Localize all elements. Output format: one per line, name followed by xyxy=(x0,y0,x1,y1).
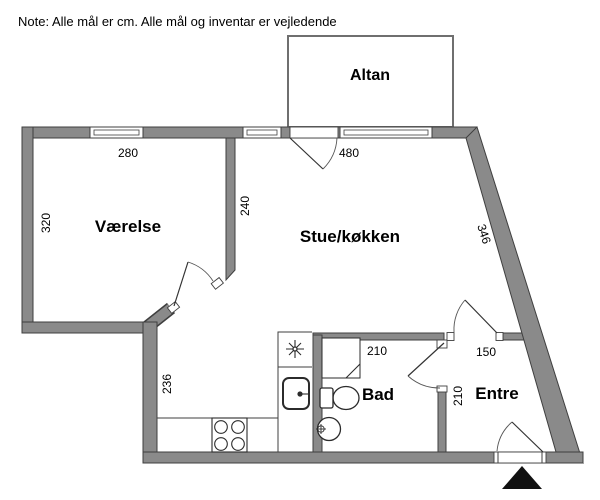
room-label-vaerelse: Værelse xyxy=(95,217,161,237)
bad-door-top-jamb xyxy=(437,340,447,348)
floor-plan-drawing xyxy=(0,0,600,500)
balcony-door-opening xyxy=(290,127,338,138)
dim-vaerelse-width: 280 xyxy=(118,146,138,160)
stove-burners-icon xyxy=(212,418,247,452)
dim-entre-wall: 210 xyxy=(451,386,465,406)
entrance-door xyxy=(497,422,543,452)
freezer-star-icon xyxy=(286,340,304,358)
room-label-altan: Altan xyxy=(350,67,390,85)
room-label-entre: Entre xyxy=(475,384,518,404)
bad-door xyxy=(408,343,444,388)
toilet-icon xyxy=(320,387,359,410)
dim-stue-window-wall: 480 xyxy=(339,146,359,160)
shower-icon xyxy=(322,338,360,378)
dim-entre-top-wall: 150 xyxy=(476,345,496,359)
balcony-door xyxy=(290,138,337,169)
stue-entre-door-left-jamb xyxy=(447,333,454,341)
window-2 xyxy=(243,127,281,138)
dim-stue-left-wall: 240 xyxy=(238,196,252,216)
kitchen-sink-icon xyxy=(283,378,309,409)
wall-bad-entre xyxy=(438,391,446,452)
vaerelse-door xyxy=(174,262,213,306)
dim-bad-width: 210 xyxy=(367,344,387,358)
note-text: Note: Alle mål er cm. Alle mål og invent… xyxy=(18,14,337,29)
room-label-bad: Bad xyxy=(362,385,394,405)
window-1 xyxy=(90,127,143,138)
wall-kitchen-left xyxy=(143,322,157,463)
window-3 xyxy=(340,127,432,138)
vaerelse-door-right-jamb xyxy=(211,278,223,290)
floor-plan: Note: Alle mål er cm. Alle mål og invent… xyxy=(0,0,600,500)
room-label-stue-kokken: Stue/køkken xyxy=(300,227,400,247)
bad-entre-wall-jamb xyxy=(437,386,447,392)
stue-entre-door xyxy=(454,300,497,333)
wall-vaerelse-bottom xyxy=(22,322,157,333)
dim-vaerelse-depth: 320 xyxy=(39,213,53,233)
wall-left xyxy=(22,127,33,333)
north-arrow-icon xyxy=(502,466,542,489)
stue-entre-door-right-jamb xyxy=(496,333,503,341)
entrance-door-opening xyxy=(494,452,546,463)
wall-slanted xyxy=(466,127,583,463)
dim-kitchen-wall: 236 xyxy=(160,374,174,394)
balcony-door-jamb xyxy=(281,127,290,138)
wall-vaerelse-stue xyxy=(226,138,235,280)
